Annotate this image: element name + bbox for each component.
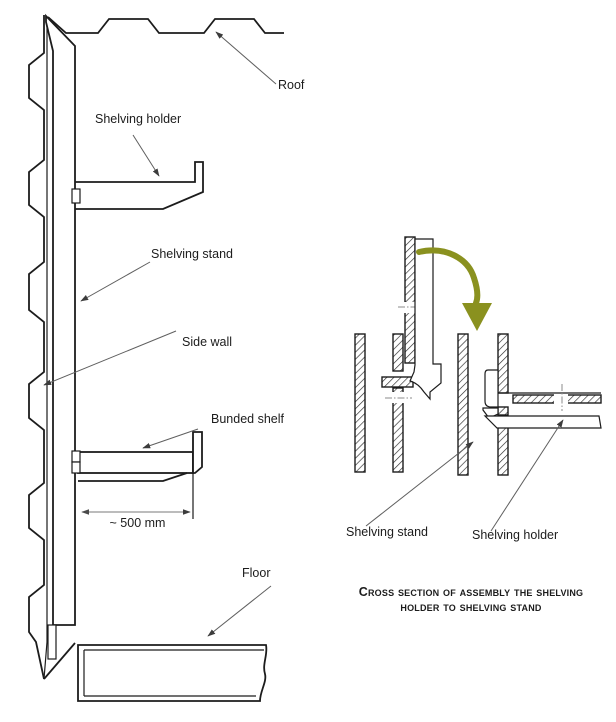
shelving-stand-leader-arrow [81, 262, 150, 301]
roof-profile [48, 17, 284, 33]
shelving-stand-bar [46, 16, 75, 625]
diagram-canvas: Roof Shelving holder Shelving stand Side… [0, 0, 616, 722]
bunded-shelf-label: Bunded shelf [211, 413, 284, 427]
floor-slab [44, 643, 266, 701]
cs-shelving-stand-label: Shelving stand [346, 526, 428, 540]
side-wall-label: Side wall [182, 336, 232, 350]
cs-shelving-holder-label: Shelving holder [472, 529, 558, 543]
dimension-500mm [82, 437, 193, 519]
roof-label: Roof [278, 79, 304, 93]
shelving-holder-bracket [72, 162, 203, 209]
cs-exploded-stand [355, 334, 412, 472]
floor-label: Floor [242, 567, 270, 581]
shelving-holder-label: Shelving holder [95, 113, 181, 127]
bunded-shelf-leader-arrow [143, 429, 198, 448]
roof-leader-arrow [216, 32, 276, 84]
side-wall-profile [29, 15, 44, 679]
shelving-stand-label: Shelving stand [151, 248, 233, 262]
cross-section-view [355, 237, 601, 531]
caption-line-1: Cross section of assembly the shelving [330, 585, 612, 600]
cs-exploded-holder [382, 237, 441, 399]
stand-foot [48, 625, 56, 659]
cs-shelf-section [498, 384, 601, 411]
bunded-shelf [72, 432, 202, 481]
cs-assembled-stand [458, 334, 508, 475]
cs-shelving-stand-leader-arrow [366, 442, 473, 526]
shelving-holder-leader-arrow [133, 135, 159, 176]
shelf-depth-dimension-label: ~ 500 mm [95, 516, 180, 530]
caption-line-2: holder to shelving stand [330, 600, 612, 615]
cross-section-caption: Cross section of assembly the shelving h… [330, 585, 612, 615]
floor-leader-arrow [208, 586, 271, 636]
